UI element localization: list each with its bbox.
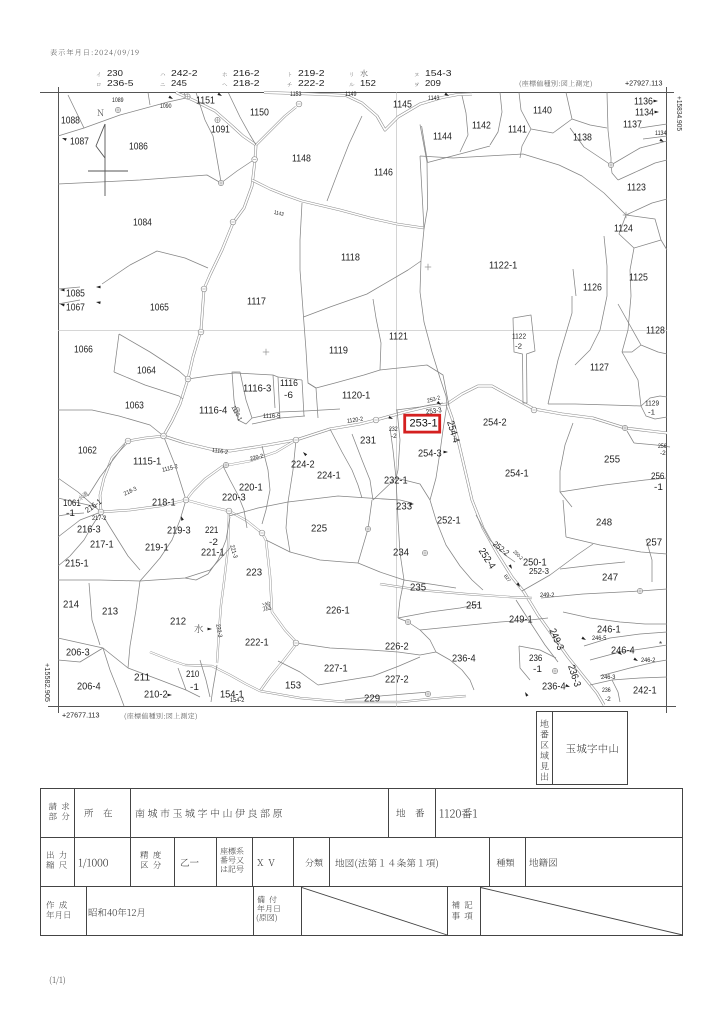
svg-text:1149: 1149 [345,92,357,98]
svg-text:232-1: 232-1 [384,474,408,486]
svg-text:1121: 1121 [389,330,408,342]
svg-text:1084: 1084 [133,216,152,228]
svg-text:236-4: 236-4 [542,680,566,692]
svg-text:+15582.905: +15582.905 [43,663,50,702]
svg-text:1153: 1153 [290,92,302,98]
svg-text:217-2: 217-2 [92,516,107,522]
svg-text:*: * [659,640,662,649]
svg-text:213: 213 [102,605,118,617]
svg-text:1122: 1122 [512,331,526,340]
svg-text:214: 214 [63,598,79,610]
svg-text:223: 223 [246,566,262,578]
svg-text:222-2: 222-2 [298,79,325,88]
svg-text:233: 233 [396,500,412,512]
svg-text:227-2: 227-2 [385,673,409,685]
svg-text:246-3: 246-3 [601,675,616,681]
svg-text:232: 232 [389,427,398,433]
svg-text:246-2: 246-2 [641,658,656,664]
svg-text:+27677.113: +27677.113 [62,710,100,719]
svg-text:210-2: 210-2 [144,688,168,700]
svg-text:1122-1: 1122-1 [489,259,517,271]
svg-text:246-5: 246-5 [592,636,607,642]
svg-text:+15834.905: +15834.905 [675,96,682,131]
svg-text:-6: -6 [284,390,293,401]
svg-text:1119: 1119 [329,344,348,356]
svg-text:226-1: 226-1 [326,604,350,616]
svg-text:242-1: 242-1 [633,684,657,696]
svg-text:256: 256 [658,444,667,450]
svg-text:225: 225 [311,522,327,534]
svg-text:1085: 1085 [66,287,85,299]
svg-text:1089: 1089 [112,98,124,104]
svg-text:1067: 1067 [66,301,85,313]
svg-text:1087: 1087 [70,135,89,147]
svg-text:216-3: 216-3 [77,523,101,535]
svg-text:252-3: 252-3 [529,566,549,576]
svg-text:1145: 1145 [393,98,412,110]
svg-text:230: 230 [107,69,124,78]
svg-text:1148: 1148 [292,152,311,164]
svg-text:-2: -2 [209,537,218,548]
svg-text:1088: 1088 [61,114,80,126]
svg-text:-1: -1 [648,407,655,416]
svg-text:212: 212 [170,615,186,627]
svg-text:226-2: 226-2 [385,640,409,652]
svg-text:227-1: 227-1 [324,662,348,674]
svg-text:1124: 1124 [614,222,633,234]
svg-text:222-1: 222-1 [245,636,269,648]
svg-text:1118: 1118 [341,251,360,263]
svg-text:1134: 1134 [635,106,654,118]
svg-text:252-1: 252-1 [437,514,461,526]
svg-text:1115-1: 1115-1 [133,455,161,467]
svg-text:-2: -2 [391,434,397,440]
svg-text:236-4: 236-4 [452,652,476,664]
svg-text:-2: -2 [605,697,611,703]
svg-text:254-3: 254-3 [418,447,442,459]
svg-text:1063: 1063 [125,399,144,411]
svg-text:224-2: 224-2 [291,458,315,470]
svg-text:236: 236 [529,653,542,664]
svg-text:257: 257 [646,536,662,548]
svg-text:1120-1: 1120-1 [342,389,370,401]
svg-text:1125: 1125 [629,271,648,283]
svg-text:1123: 1123 [627,181,646,193]
svg-text:249-1: 249-1 [509,613,533,625]
svg-text:1116-4: 1116-4 [199,404,227,416]
svg-text:235: 235 [410,581,426,593]
svg-text:-1: -1 [190,682,199,693]
svg-text:215-1: 215-1 [65,557,89,569]
svg-text:206-3: 206-3 [66,646,90,658]
svg-text:221-1: 221-1 [201,546,225,558]
svg-text:254-2: 254-2 [483,416,507,428]
svg-text:1129: 1129 [645,398,659,407]
svg-text:221: 221 [205,525,218,536]
svg-text:1141: 1141 [508,123,527,135]
svg-text:251: 251 [466,599,482,611]
svg-text:219-3: 219-3 [167,524,191,536]
svg-text:1065: 1065 [150,301,169,313]
svg-text:1150: 1150 [250,106,269,118]
svg-text:210: 210 [186,669,199,680]
svg-text:216-2: 216-2 [233,69,260,78]
svg-text:224-1: 224-1 [317,469,341,481]
svg-text:1066: 1066 [74,343,93,355]
svg-text:1142: 1142 [472,119,491,131]
svg-text:1126: 1126 [583,281,602,293]
svg-text:242-2: 242-2 [171,69,198,78]
svg-text:246-4: 246-4 [611,644,635,656]
svg-text:246-1: 246-1 [597,623,621,635]
svg-text:245: 245 [171,79,188,88]
svg-text:1116: 1116 [280,378,298,389]
svg-text:1116-3: 1116-3 [243,382,271,394]
svg-text:+27927.113: +27927.113 [625,78,663,87]
svg-text:229: 229 [364,692,380,704]
svg-text:255: 255 [604,453,620,465]
svg-text:153: 153 [285,679,301,691]
svg-text:206-4: 206-4 [77,680,101,692]
svg-text:1064: 1064 [137,364,156,376]
svg-text:-2: -2 [660,451,666,457]
svg-text:234: 234 [393,546,409,558]
svg-text:218-2: 218-2 [233,79,260,88]
svg-text:1151: 1151 [196,94,215,106]
svg-text:209: 209 [425,79,441,88]
svg-text:1144: 1144 [433,130,452,142]
svg-text:1146: 1146 [374,166,393,178]
svg-text:218-1: 218-1 [152,496,176,508]
svg-text:-1: -1 [654,482,663,493]
svg-text:1143: 1143 [428,96,440,102]
svg-text:236: 236 [602,688,611,694]
svg-text:247: 247 [602,571,618,583]
svg-text:1091: 1091 [211,123,230,135]
svg-text:217-1: 217-1 [90,538,114,550]
svg-text:220-3: 220-3 [222,491,246,503]
svg-text:249-2: 249-2 [540,593,555,599]
svg-text:254-1: 254-1 [505,467,529,479]
svg-text:1128: 1128 [646,324,665,336]
svg-text:256: 256 [651,471,664,482]
svg-text:-2: -2 [515,341,522,350]
svg-text:1134: 1134 [655,131,667,137]
svg-text:-1: -1 [533,664,542,675]
svg-text:248: 248 [596,516,612,528]
svg-text:1127: 1127 [590,361,609,373]
svg-text:154-3: 154-3 [425,69,452,78]
svg-text:1138: 1138 [573,131,592,143]
svg-text:231: 231 [360,434,376,446]
svg-text:1062: 1062 [78,444,97,456]
svg-text:236-5: 236-5 [107,79,134,88]
svg-text:-1: -1 [66,508,75,519]
svg-text:1140: 1140 [533,104,552,116]
svg-text:1086: 1086 [129,140,148,152]
svg-text:1090: 1090 [160,104,172,110]
svg-text:211: 211 [134,671,150,683]
svg-text:154-2: 154-2 [230,698,245,704]
svg-text:1116-5: 1116-5 [263,414,281,420]
svg-text:253-1: 253-1 [410,418,438,430]
svg-text:1137: 1137 [623,118,642,130]
svg-text:1117: 1117 [247,295,266,307]
svg-text:219-1: 219-1 [145,541,169,553]
svg-text:219-2: 219-2 [298,69,325,78]
svg-text:152: 152 [360,79,376,88]
